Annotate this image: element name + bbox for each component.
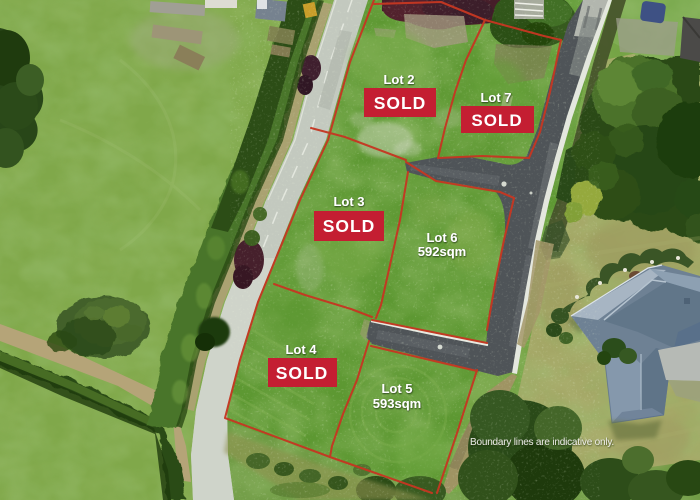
svg-text:Lot 4: Lot 4 bbox=[285, 342, 317, 357]
svg-text:SOLD: SOLD bbox=[323, 216, 376, 236]
svg-text:Lot 7: Lot 7 bbox=[480, 90, 511, 105]
svg-text:Boundary lines are indicative: Boundary lines are indicative only. bbox=[470, 437, 614, 448]
svg-text:Lot 3: Lot 3 bbox=[333, 194, 364, 209]
svg-text:592sqm: 592sqm bbox=[418, 244, 466, 259]
svg-text:Lot 2: Lot 2 bbox=[383, 72, 414, 87]
svg-text:SOLD: SOLD bbox=[471, 111, 522, 130]
svg-text:SOLD: SOLD bbox=[374, 93, 427, 113]
svg-text:SOLD: SOLD bbox=[276, 363, 329, 383]
svg-text:Lot 5: Lot 5 bbox=[381, 381, 412, 396]
svg-text:593sqm: 593sqm bbox=[373, 396, 421, 411]
svg-text:Lot 6: Lot 6 bbox=[426, 230, 457, 245]
